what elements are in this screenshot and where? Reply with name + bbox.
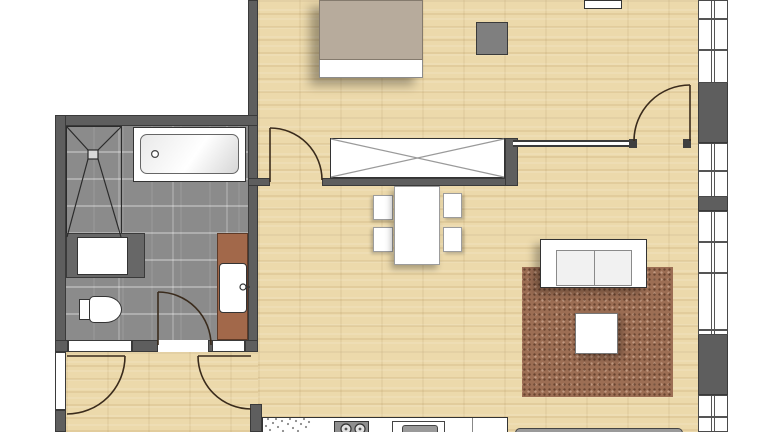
wall-bathroom-north (55, 115, 258, 126)
bathtub (133, 127, 246, 182)
coffee-table (575, 313, 618, 354)
counter-divider (472, 418, 473, 432)
wall-divider-stub (248, 178, 270, 186)
door-stub-east-1 (629, 139, 637, 148)
dining-chair-4 (443, 227, 462, 252)
wall-opening-south-1 (68, 340, 132, 352)
door-stub-east-2 (683, 139, 691, 148)
entry-door-threshold (55, 352, 66, 410)
window-tick (699, 49, 727, 51)
wall-divider-main (322, 178, 518, 186)
window-band-4 (698, 395, 728, 432)
washbasin (219, 263, 247, 313)
window-tick (699, 329, 727, 331)
bathtub-basin (140, 134, 239, 174)
wall-kitchen-stub (250, 404, 262, 432)
kitchen-sink-basin (402, 425, 438, 432)
dining-chair-3 (443, 193, 462, 218)
floor-plan (0, 0, 768, 432)
shower (66, 126, 122, 238)
bed-blanket (319, 0, 423, 60)
sofa-cushion-divider (594, 250, 595, 286)
hallway-wood-floor (66, 352, 258, 432)
tv-lowboard (515, 428, 683, 432)
wardrobe (330, 138, 505, 178)
wall-bathroom-south-d (245, 340, 258, 352)
wall-bedroom-west (248, 0, 258, 352)
wall-pier-3 (698, 334, 728, 395)
dining-table (394, 186, 440, 265)
bed-sheet (319, 60, 423, 78)
wall-pier-2 (698, 196, 728, 211)
cooktop (334, 421, 369, 432)
side-stool (476, 22, 508, 55)
wall-bathroom-south-a (55, 340, 68, 352)
dining-chair-2 (373, 227, 393, 252)
sofa (540, 239, 647, 288)
window-tick (699, 416, 727, 418)
wall-entry-stub (55, 410, 66, 432)
wall-bathroom-south-b (132, 340, 158, 352)
dresser (584, 0, 622, 9)
wall-bathroom-west (55, 115, 66, 352)
window-tick (699, 170, 727, 172)
partition-bedroom (513, 140, 631, 147)
window-band-2 (698, 143, 728, 197)
toilet-bowl (89, 296, 122, 323)
wall-opening-south-2 (212, 340, 245, 352)
double-bed (319, 0, 423, 78)
window-glass-1 (711, 1, 715, 82)
window-glass-4 (711, 396, 715, 431)
window-band-1 (698, 0, 728, 83)
window-tick (699, 18, 727, 20)
wall-pier-1 (698, 82, 728, 143)
dining-chair-1 (373, 195, 393, 220)
washing-machine (77, 237, 128, 275)
window-tick (699, 241, 727, 243)
window-tick (699, 272, 727, 274)
window-band-3 (698, 211, 728, 335)
